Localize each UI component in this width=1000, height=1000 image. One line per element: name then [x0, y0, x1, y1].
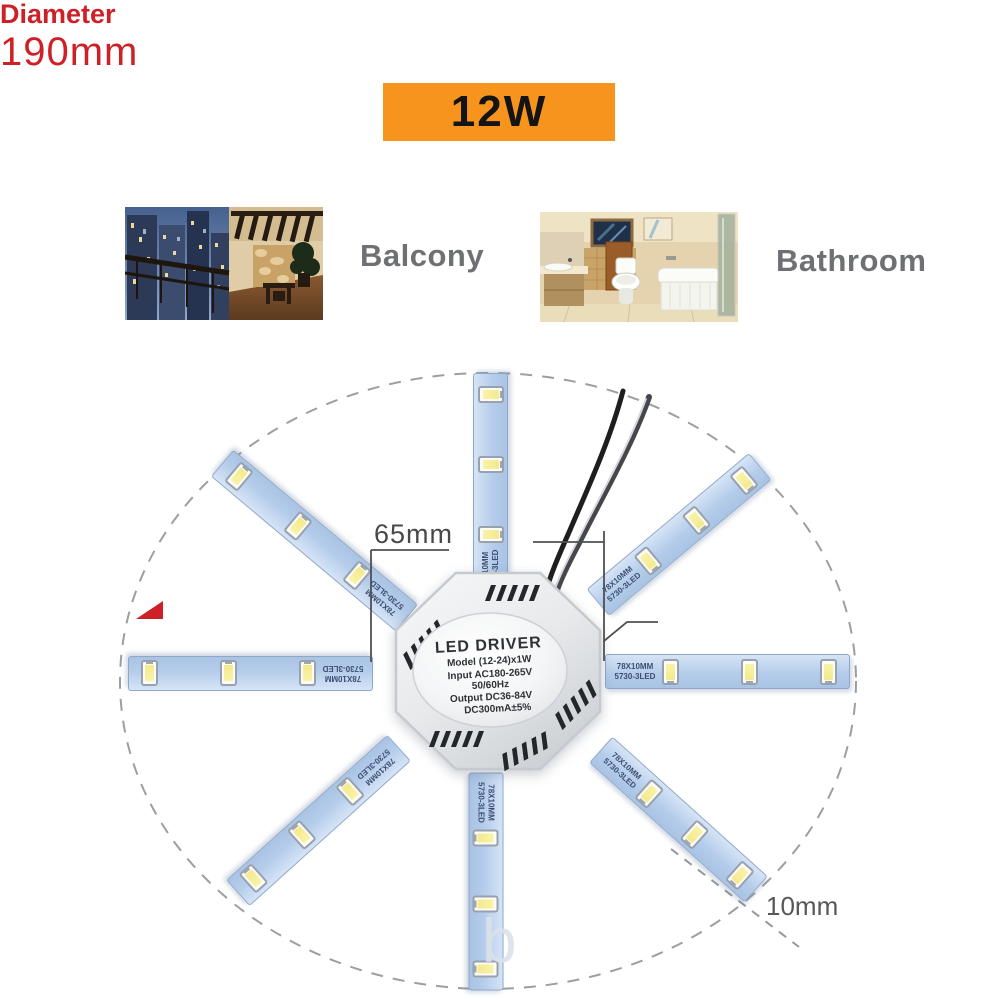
- shower-glass: [718, 214, 735, 316]
- led-chips: [478, 374, 504, 547]
- led-chip: [239, 863, 269, 894]
- led-chip: [820, 659, 837, 685]
- led-strip-southwest: 78X10MM 5730-3LED: [226, 735, 411, 906]
- strip-type-text: 5730-3LED: [612, 672, 658, 682]
- power-wire-black: [546, 391, 623, 592]
- led-chip: [725, 860, 755, 891]
- led-chip: [680, 819, 710, 850]
- led-chips: [215, 454, 375, 594]
- bathroom-photo: [540, 212, 738, 322]
- balcony-photo: [125, 207, 323, 320]
- strip-label: 78X10MM 5730-3LED: [320, 664, 366, 683]
- led-strip-east: 78X10MM 5730-3LED: [605, 654, 850, 689]
- balcony-scene: [125, 207, 323, 320]
- strip-size-text: 78X10MM: [612, 662, 658, 672]
- balcony-label: Balcony: [360, 238, 484, 274]
- driver-line-freq: 50/60Hz: [472, 679, 510, 692]
- radius-measurement-label: 65mm: [374, 519, 453, 550]
- wattage-text: 12W: [451, 87, 547, 137]
- led-strip-southeast: 78X10MM 5730-3LED: [589, 737, 768, 903]
- led-chip: [283, 511, 313, 542]
- led-strip-north: 78X10MM 5730-3LED: [473, 373, 508, 600]
- strip-width-label: 10mm: [766, 891, 838, 922]
- led-strip-northeast: 78X10MM 5730-3LED: [587, 453, 772, 616]
- led-chips: [129, 661, 320, 687]
- strip-type-text: 5730-3LED: [476, 780, 486, 826]
- diameter-annotation: Diameter 190mm: [0, 0, 1000, 73]
- diameter-arrow-triangle: [136, 601, 163, 619]
- led-chip: [473, 830, 499, 847]
- led-chips: [632, 775, 765, 898]
- led-chip: [478, 456, 504, 473]
- balcony-interior: [229, 207, 323, 320]
- strip-label: 78X10MM 5730-3LED: [476, 780, 495, 826]
- diameter-word: Diameter: [0, 0, 1000, 28]
- diameter-value: 190mm: [0, 31, 1000, 73]
- led-chips: [230, 774, 369, 902]
- leader-line: [604, 622, 658, 641]
- watermark-text: b: [482, 906, 516, 977]
- vanity: [540, 232, 588, 306]
- led-chip: [741, 659, 758, 685]
- led-chip: [287, 820, 317, 851]
- led-chip: [299, 661, 316, 687]
- table: [263, 283, 295, 304]
- led-strip-west: 78X10MM 5730-3LED: [128, 656, 373, 691]
- led-chip: [224, 461, 254, 492]
- strip-label: 78X10MM 5730-3LED: [612, 662, 658, 681]
- led-chip: [478, 526, 504, 543]
- led-driver: LED DRIVER Model (12-24)x1W Input AC180-…: [393, 571, 605, 773]
- wattage-banner: 12W: [383, 83, 615, 141]
- product-infographic: 12W: [0, 0, 1000, 1000]
- led-chip: [662, 659, 679, 685]
- led-chip: [220, 661, 237, 687]
- led-chip: [141, 661, 158, 687]
- led-chips: [658, 659, 849, 685]
- bathroom-scene: [540, 212, 738, 322]
- strip-type-text: 5730-3LED: [320, 664, 366, 674]
- strip-size-text: 78X10MM: [486, 780, 496, 826]
- led-chips: [630, 457, 768, 578]
- strip-size-text: 78X10MM: [320, 674, 366, 684]
- led-chip: [681, 505, 711, 536]
- bathroom-label: Bathroom: [776, 243, 926, 279]
- led-chip: [729, 465, 759, 496]
- led-chip: [478, 386, 504, 403]
